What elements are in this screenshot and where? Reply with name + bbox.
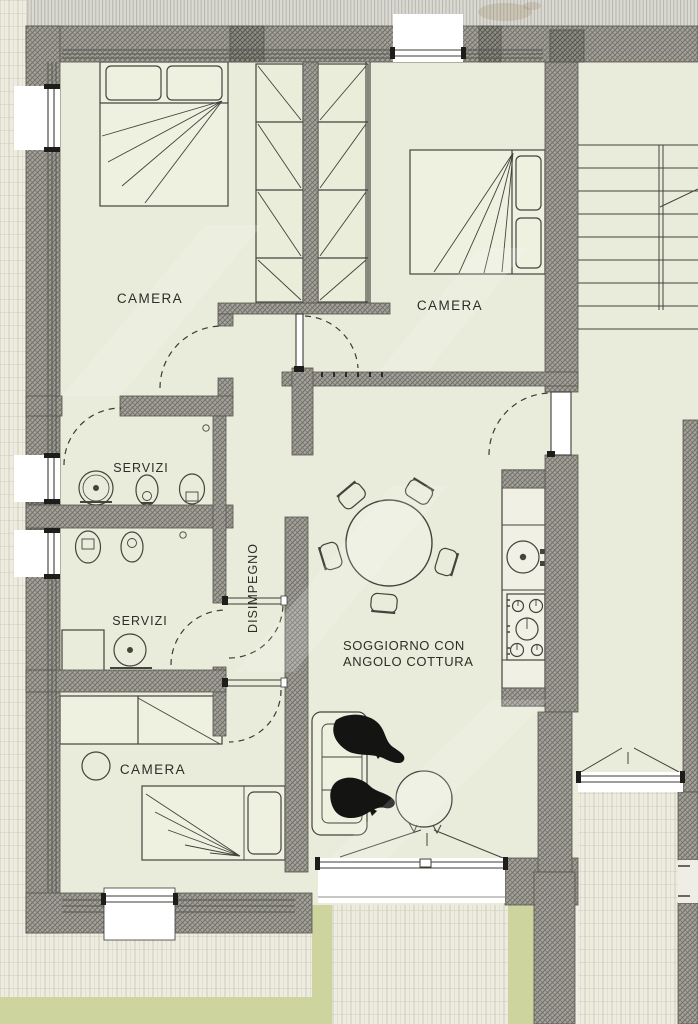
terrace-soggiorno (332, 903, 508, 1024)
single-bed (142, 786, 285, 860)
stairwell-floor (578, 26, 698, 792)
label-servizi1: SERVIZI (113, 461, 168, 475)
scan-stain-small (523, 2, 541, 10)
label-servizi2: SERVIZI (112, 614, 167, 628)
wall-servizi-divider (26, 505, 233, 528)
garden-strip-right (508, 903, 534, 1024)
wall-camera1-east (218, 378, 233, 398)
wall-far-right (683, 420, 698, 792)
door-hinge (547, 451, 555, 457)
pillar (230, 26, 264, 62)
french-window-soggiorno (315, 857, 508, 903)
wall-hall-top (218, 303, 390, 314)
camera2-door-leaf (296, 314, 303, 370)
wall-wardrobe-center (303, 62, 318, 303)
terrace-right (578, 792, 680, 1024)
wall-top (26, 26, 698, 62)
pillar (479, 26, 501, 62)
floor-plan-image: CAMERA CAMERA SERVIZI SERVIZI DISIMPEGNO… (0, 0, 698, 1024)
kitchen-cabinet-top (502, 470, 545, 488)
pavement-top-band (0, 0, 698, 26)
wall-servizi1-top (120, 396, 233, 416)
window-left-servizi1 (14, 453, 60, 504)
wall-right-mid (545, 455, 578, 712)
wall-camera3-east (285, 517, 308, 872)
wall-right-lower (538, 712, 572, 872)
wall-servizi-east (213, 416, 226, 603)
entrance-door-leaf (551, 392, 571, 455)
double-bed-camera1 (100, 62, 228, 206)
window-camera3 (101, 888, 178, 940)
wall-soggiorno-north (282, 372, 578, 386)
window-top-camera2 (390, 14, 466, 62)
wall-right-upper (545, 62, 578, 392)
label-camera1: CAMERA (117, 291, 183, 306)
label-camera3: CAMERA (120, 762, 186, 777)
terrace-bottom-left (26, 933, 312, 999)
window-right-unit (576, 771, 685, 792)
label-camera2: CAMERA (417, 298, 483, 313)
kitchen (502, 470, 547, 706)
floor-plan-page: CAMERA CAMERA SERVIZI SERVIZI DISIMPEGNO… (0, 0, 698, 1024)
label-soggiorno-line2: ANGOLO COTTURA (343, 654, 473, 669)
garden-strip-mid (312, 903, 332, 1024)
wall-right-terrace (534, 872, 575, 1024)
desk (60, 696, 222, 744)
label-soggiorno-line1: SOGGIORNO CON (343, 638, 465, 653)
garden-strip-bottom (0, 997, 332, 1024)
terrace-gate-gap (678, 860, 698, 903)
pillar (550, 30, 584, 62)
window-left-camera1 (14, 84, 60, 152)
wall-corridor-east-upper (292, 368, 313, 455)
door-hinge (294, 366, 304, 372)
label-disimpegno: DISIMPEGNO (246, 543, 260, 633)
window-left-servizi2 (14, 528, 60, 579)
